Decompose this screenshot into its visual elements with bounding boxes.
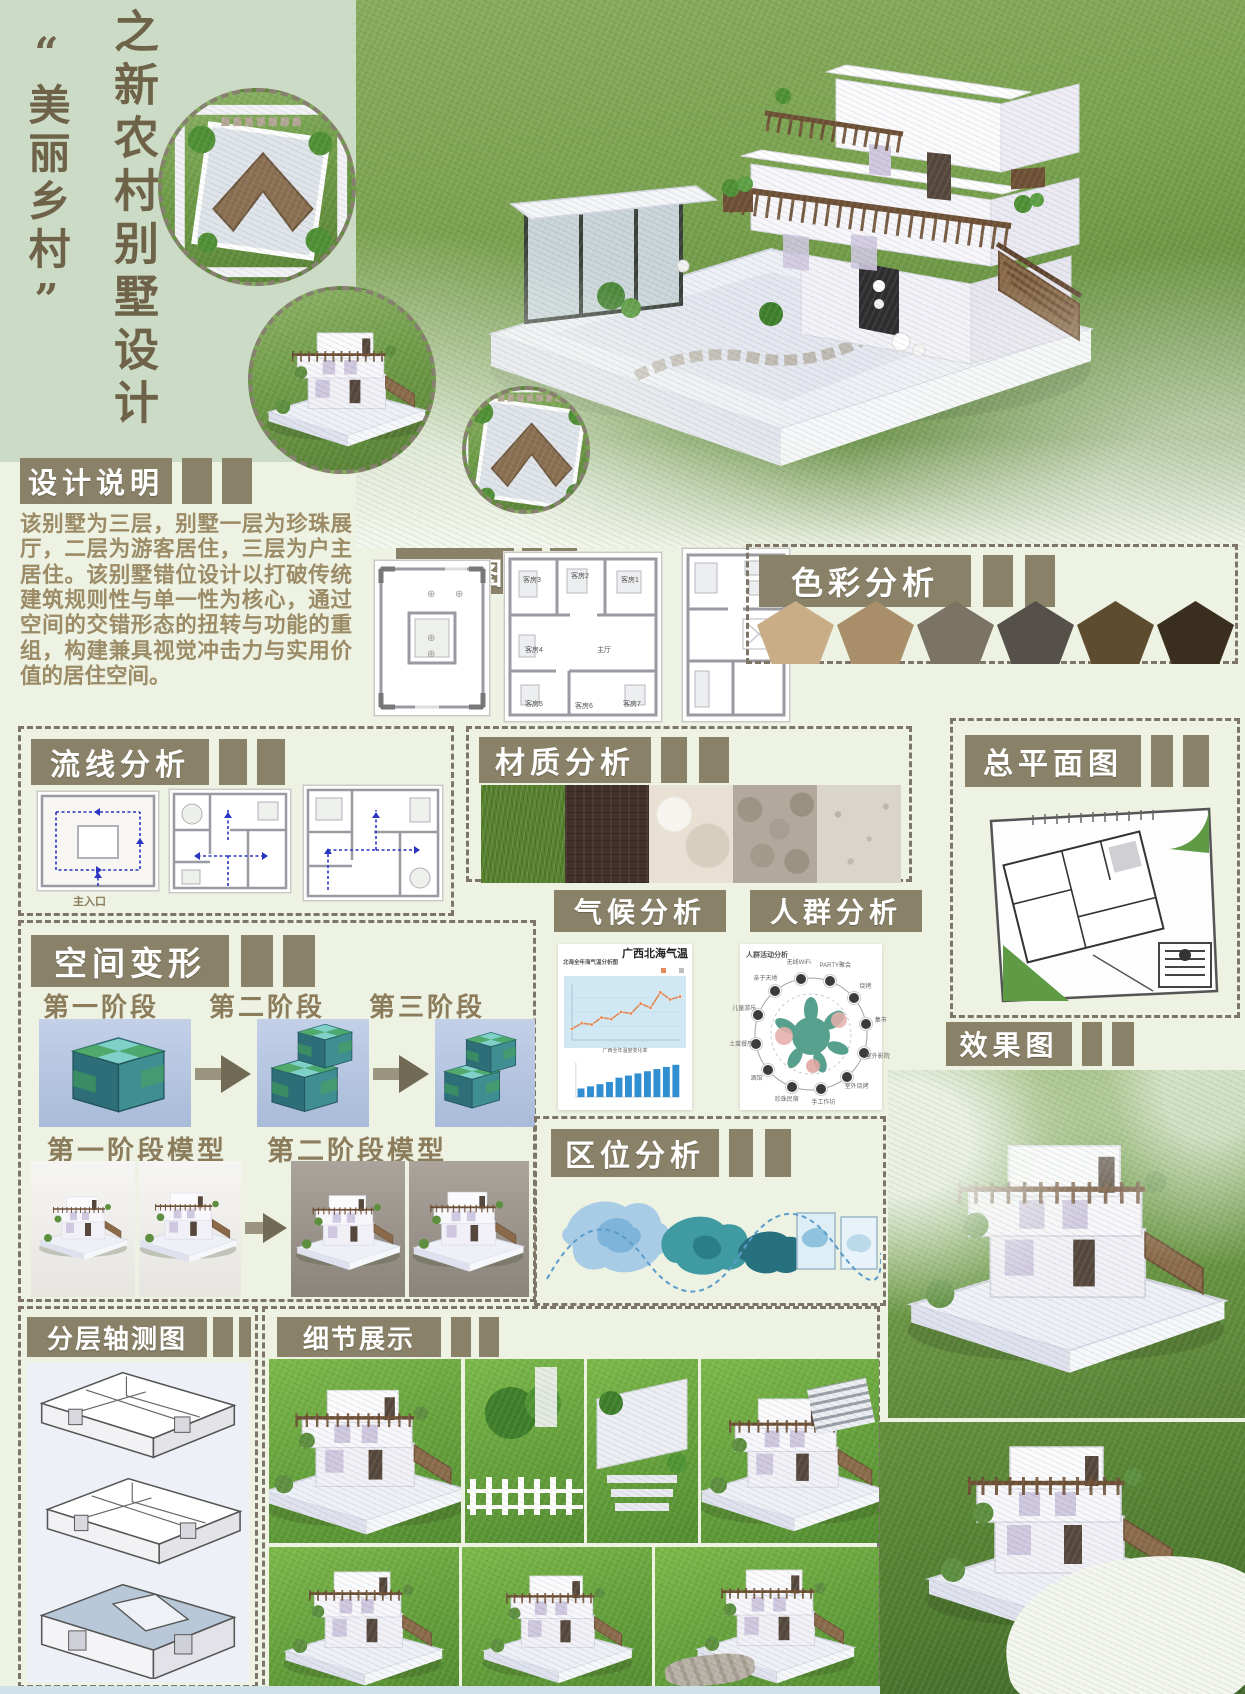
color-analysis-section: 色彩分析 — [746, 544, 1238, 664]
stage-model-arrow — [245, 1213, 287, 1243]
material-swatch-cobblestone — [733, 785, 817, 883]
circulation-plan-3 — [303, 785, 443, 901]
title-decor — [1151, 735, 1173, 787]
title-decor — [213, 1317, 233, 1357]
detail-photo-model-c — [655, 1547, 879, 1693]
main-entrance-label: 主入口 — [73, 893, 106, 909]
title-decor — [1082, 1022, 1102, 1066]
details-title: 细节展示 — [277, 1317, 441, 1357]
detail-photo-fence-garden — [465, 1359, 584, 1543]
color-swatch — [917, 601, 994, 664]
location-section: 区位分析 — [534, 1116, 886, 1306]
activity-node-label: 室外烧烤 — [835, 1084, 879, 1091]
crowd-diagram-card: 人群活动分析 无线WiFiPARTY聚会烧烤集市室外影院室外烧烤手工作坊珍 — [740, 944, 882, 1110]
activity-node-label: 亲子天地 — [743, 976, 787, 983]
activity-node-label: 土菜餐厅 — [719, 1042, 763, 1049]
stage1-model-photo-b — [139, 1161, 241, 1297]
climate-chart-card: 北海全年海气温分析图 广西北海气温 广西全年温度变化率 — [558, 944, 692, 1110]
color-swatch — [837, 601, 914, 664]
poster-theme-title: “美丽乡村” — [16, 28, 77, 428]
circulation-section: 流线分析 — [18, 726, 454, 916]
activity-node-label: 室外影院 — [856, 1054, 900, 1061]
activity-node-label: PARTY聚会 — [813, 963, 857, 970]
poster-canvas: 之新农村别墅设计 “美丽乡村” 设计说明 该别墅为三层，别墅一层为珍珠展厅，二层… — [0, 0, 1245, 1694]
svg-text:⊕: ⊕ — [427, 589, 435, 600]
circulation-plan-1 — [37, 791, 159, 891]
title-decor — [699, 737, 729, 783]
room-label: 主厅 — [597, 645, 611, 655]
crowd-title: 人群分析 — [750, 890, 922, 932]
climate-title: 气候分析 — [554, 890, 726, 932]
room-label: 客房5 — [525, 699, 543, 709]
axonometric-title: 分层轴测图 — [27, 1317, 207, 1357]
stage-arrow — [373, 1055, 429, 1093]
stage2-cube-image — [257, 1019, 369, 1127]
detail-photo-model-b — [462, 1547, 652, 1693]
title-decor — [661, 737, 687, 783]
room-label: 客房7 — [623, 699, 641, 709]
poster-series-title: 之新农村别墅设计 — [100, 8, 165, 458]
title-decor — [729, 1129, 753, 1177]
color-analysis-title: 色彩分析 — [759, 555, 971, 607]
activity-node-icon — [841, 1071, 853, 1083]
color-swatch-row — [757, 601, 1234, 664]
rendering-photo-main — [888, 1070, 1245, 1418]
courtyard-detail-circle-photo — [462, 386, 590, 514]
title-decor — [451, 1317, 471, 1357]
design-notes-title: 设计说明 — [20, 458, 172, 504]
title-decor — [182, 458, 212, 504]
bar-chart-legend: 广西全年温度变化率 — [558, 1047, 692, 1054]
material-swatch-wood — [565, 785, 649, 883]
climate-chart-subtitle: 北海全年海气温分析图 — [563, 958, 618, 966]
axon-drawing-level1 — [27, 1575, 249, 1679]
rendering-title: 效果图 — [946, 1022, 1072, 1066]
color-swatch — [1157, 601, 1234, 664]
location-maps — [545, 1183, 881, 1301]
stage1-cube-image — [39, 1019, 191, 1127]
svg-text:⊕: ⊕ — [427, 633, 435, 644]
master-plan-section: 总平面图 — [950, 718, 1240, 1018]
title-decor — [257, 739, 285, 785]
circulation-title: 流线分析 — [31, 739, 209, 785]
detail-photo-model-a — [269, 1547, 459, 1693]
stage2-model-photo-b — [409, 1161, 529, 1297]
material-swatch-row — [481, 785, 901, 883]
materials-title: 材质分析 — [479, 737, 651, 783]
title-decor — [1183, 735, 1209, 787]
color-swatch — [757, 601, 834, 664]
site-plan-drawing — [973, 795, 1225, 1009]
axon-drawing-level3 — [27, 1363, 249, 1467]
title-decor — [239, 1317, 251, 1357]
title-decor — [1112, 1022, 1134, 1066]
material-swatch-grass — [481, 785, 565, 883]
temperature-line-chart — [564, 976, 686, 1048]
title-decor — [983, 555, 1013, 607]
stage1-model-photo-a — [31, 1161, 135, 1297]
detail-photo-steps — [587, 1359, 698, 1543]
stage-arrow — [195, 1055, 251, 1093]
materials-section: 材质分析 — [466, 726, 912, 882]
space-transform-title: 空间变形 — [31, 935, 229, 987]
design-notes-body: 该别墅为三层，别墅一层为珍珠展厅，二层为游客居住，三层为户主居住。该别墅错位设计… — [20, 512, 352, 690]
bottom-strip — [0, 1686, 880, 1694]
crowd-activity-diagram: 无线WiFiPARTY聚会烧烤集市室外影院室外烧烤手工作坊珍珠民宿酒馆土菜餐厅儿… — [740, 954, 882, 1106]
activity-node-label: 集市 — [859, 1018, 903, 1025]
title-decor — [222, 458, 252, 504]
title-decor — [765, 1129, 791, 1177]
legend-swatch-low — [679, 968, 684, 973]
stage2-model-photo-a — [291, 1161, 405, 1297]
temperature-bar-chart — [564, 1054, 686, 1104]
details-section: 细节展示 — [262, 1306, 880, 1694]
activity-node-label: 儿童游乐 — [722, 1006, 766, 1013]
material-swatch-plaster — [817, 785, 901, 883]
title-decor — [283, 935, 315, 987]
legend-swatch-high — [661, 968, 666, 973]
color-swatch — [1077, 601, 1154, 664]
room-label: 客房1 — [621, 575, 639, 585]
stage3-cube-image — [435, 1019, 535, 1127]
color-swatch — [997, 601, 1074, 664]
room-label: 客房3 — [523, 575, 541, 585]
axon-drawing-level2 — [27, 1469, 249, 1573]
activity-node-label: 珍珠民宿 — [765, 1097, 809, 1104]
axonometric-panel — [27, 1363, 249, 1683]
model-side-view-circle-photo — [248, 286, 436, 474]
axonometric-section: 分层轴测图 — [18, 1306, 258, 1688]
svg-text:⊕: ⊕ — [427, 649, 435, 660]
title-decor — [241, 935, 273, 987]
room-label: 客房2 — [571, 571, 589, 581]
svg-text:⊕: ⊕ — [455, 589, 463, 600]
activity-node-icon — [786, 1081, 798, 1093]
floor-plan-level2: 客房3 客房2 客房1 客房4 主厅 客房5 客房6 客房7 — [504, 552, 662, 722]
rendering-photo-secondary — [878, 1422, 1245, 1694]
master-plan-title: 总平面图 — [965, 735, 1141, 787]
title-decor — [219, 739, 247, 785]
activity-node-label: 烧烤 — [843, 984, 887, 991]
space-transform-section: 空间变形 第一阶段 第二阶段 第三阶段 第一阶段模型 第二阶段模型 — [18, 920, 536, 1302]
activity-node-label: 酒馆 — [735, 1076, 779, 1083]
location-title: 区位分析 — [551, 1129, 719, 1177]
room-label: 客房6 — [575, 701, 593, 711]
model-top-view-circle-photo — [158, 88, 356, 286]
activity-node-icon — [815, 1083, 827, 1095]
room-label: 客房4 — [525, 645, 543, 655]
material-swatch-marble — [649, 785, 733, 883]
floor-plan-level1: ⊕⊕ ⊕⊕ — [374, 560, 490, 716]
rendering-fog — [888, 1070, 1245, 1418]
activity-node-icon — [769, 985, 781, 997]
activity-node-icon — [848, 992, 860, 1004]
title-decor — [479, 1317, 499, 1357]
climate-chart-heading: 广西北海气温 — [622, 945, 688, 961]
circulation-plan-2 — [169, 789, 291, 893]
title-decor — [1025, 555, 1055, 607]
activity-node-icon — [762, 1064, 774, 1076]
detail-photo-balcony — [701, 1359, 879, 1543]
detail-photo-terrace — [269, 1359, 461, 1543]
